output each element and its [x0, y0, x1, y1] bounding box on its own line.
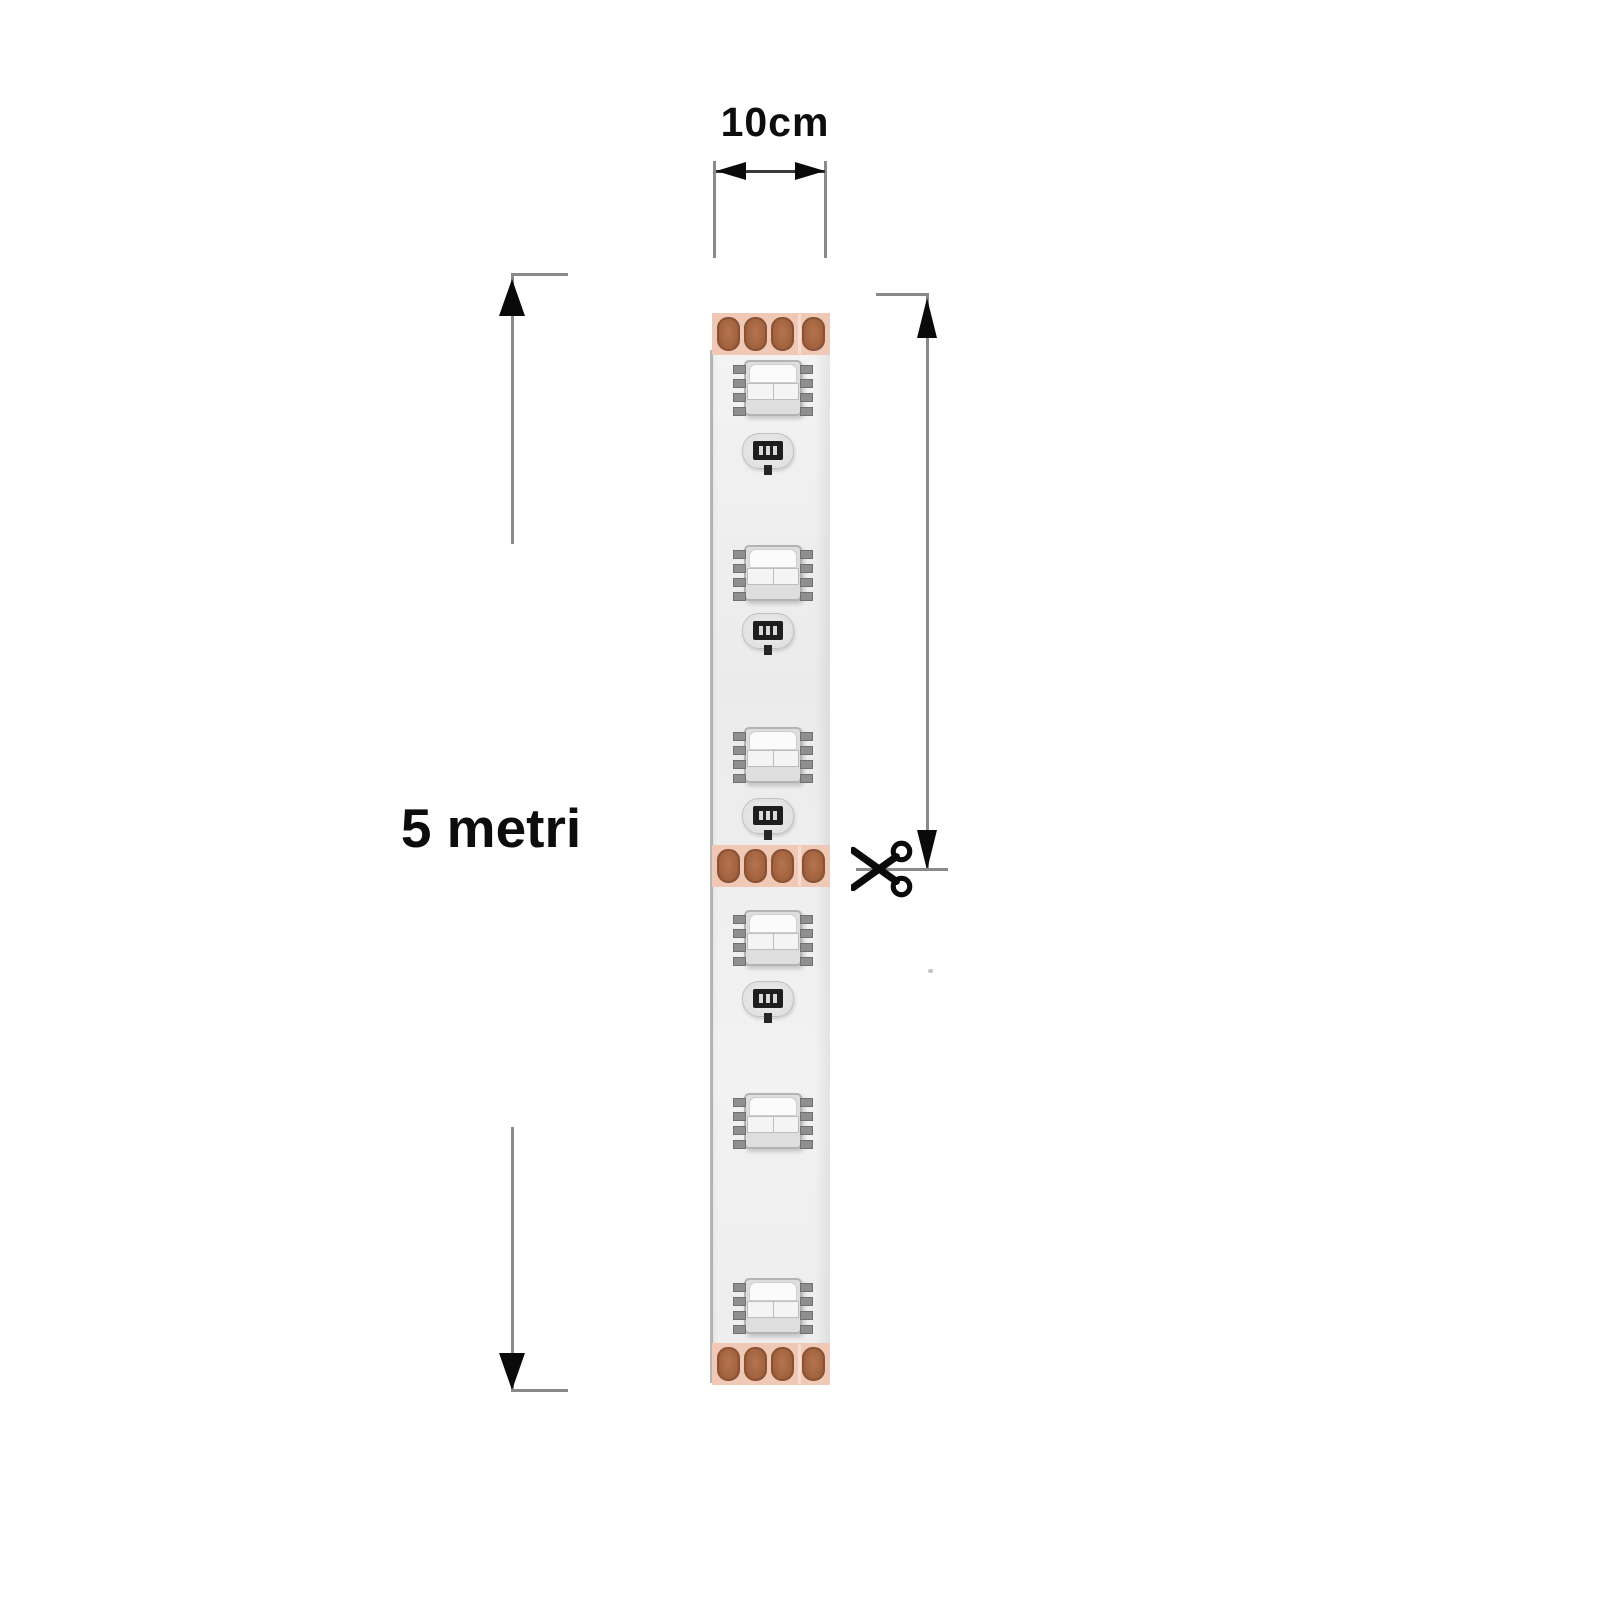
- solder-pad: [802, 317, 825, 351]
- resistor: [742, 613, 794, 649]
- arrow-down-icon: [499, 1353, 525, 1390]
- segment-tick-top: [876, 293, 929, 296]
- led-module: [744, 545, 802, 601]
- led-pin: [733, 1325, 746, 1334]
- resistor: [742, 433, 794, 469]
- solder-pad: [744, 849, 767, 883]
- led-pin: [800, 379, 813, 388]
- resistor: [742, 981, 794, 1017]
- resistor-chip: [753, 621, 783, 640]
- led-pin: [733, 929, 746, 938]
- led-pin: [733, 732, 746, 741]
- length-tick-top: [511, 273, 568, 276]
- cut-seam: [798, 846, 801, 886]
- resistor: [742, 798, 794, 834]
- led-lens-top: [749, 731, 797, 750]
- led-pin: [733, 1311, 746, 1320]
- led-pin: [800, 915, 813, 924]
- led-pin: [800, 393, 813, 402]
- led-pin: [733, 957, 746, 966]
- resistor-chip: [753, 989, 783, 1008]
- led-pin: [800, 1311, 813, 1320]
- resistor-marking: [773, 626, 777, 635]
- led-pin: [733, 760, 746, 769]
- width-dimension-label: 10cm: [695, 102, 855, 143]
- resistor-marking: [759, 626, 763, 635]
- led-lens-top: [749, 914, 797, 933]
- led-pin: [733, 1283, 746, 1292]
- scissors-icon: [851, 835, 919, 903]
- arrow-left-icon: [716, 162, 746, 180]
- led-lens-window: [747, 933, 799, 950]
- led-pin: [733, 564, 746, 573]
- led-pin: [733, 1112, 746, 1121]
- led-pin: [733, 915, 746, 924]
- led-lens-top: [749, 1282, 797, 1301]
- solder-pad: [717, 849, 740, 883]
- segment-dimension-line: [926, 293, 929, 871]
- led-pin: [800, 774, 813, 783]
- led-lens-top: [749, 364, 797, 383]
- led-lens-top: [749, 1097, 797, 1116]
- length-dimension-line-lower: [511, 1127, 514, 1391]
- led-pin: [733, 379, 746, 388]
- led-pin: [800, 1325, 813, 1334]
- led-pin: [733, 1126, 746, 1135]
- led-pin: [800, 943, 813, 952]
- solder-pad-row: [712, 845, 830, 887]
- solder-pad: [802, 849, 825, 883]
- resistor-marking: [766, 811, 770, 820]
- led-pin: [733, 592, 746, 601]
- arrow-down-icon: [917, 830, 937, 870]
- solder-pad: [771, 849, 794, 883]
- solder-pad-row: [712, 1343, 830, 1385]
- led-pin: [733, 365, 746, 374]
- led-pin: [800, 732, 813, 741]
- led-lens-window: [747, 1301, 799, 1318]
- resistor-marking: [773, 811, 777, 820]
- led-pin: [733, 1098, 746, 1107]
- led-pin: [733, 550, 746, 559]
- led-pin: [800, 1112, 813, 1121]
- arrow-up-icon: [499, 279, 525, 316]
- resistor-marking: [766, 994, 770, 1003]
- led-strip-dimension-diagram: 10cm 5 metri: [0, 0, 1600, 1600]
- led-pin: [800, 957, 813, 966]
- solder-pad: [744, 1347, 767, 1381]
- solder-pad: [717, 1347, 740, 1381]
- photo-speck: [928, 969, 933, 973]
- resistor-chip: [753, 806, 783, 825]
- led-module: [744, 1278, 802, 1334]
- led-strip: [712, 313, 830, 1383]
- solder-pad: [771, 317, 794, 351]
- resistor-marking: [759, 811, 763, 820]
- led-pin: [800, 1297, 813, 1306]
- led-module: [744, 727, 802, 783]
- led-pin: [733, 746, 746, 755]
- resistor-terminal: [764, 830, 772, 840]
- led-pin: [800, 592, 813, 601]
- length-tick-bottom: [511, 1389, 568, 1392]
- led-pin: [733, 1297, 746, 1306]
- led-pin: [733, 774, 746, 783]
- resistor-marking: [759, 446, 763, 455]
- led-pin: [800, 746, 813, 755]
- resistor-terminal: [764, 465, 772, 475]
- solder-pad: [802, 1347, 825, 1381]
- resistor-marking: [773, 446, 777, 455]
- led-pin: [800, 550, 813, 559]
- resistor-terminal: [764, 645, 772, 655]
- led-pin: [800, 578, 813, 587]
- led-pin: [733, 943, 746, 952]
- led-lens-top: [749, 549, 797, 568]
- led-pin: [800, 1098, 813, 1107]
- led-module: [744, 910, 802, 966]
- led-pin: [800, 564, 813, 573]
- led-module: [744, 1093, 802, 1149]
- led-pin: [733, 578, 746, 587]
- led-pin: [733, 407, 746, 416]
- led-pin: [800, 1140, 813, 1149]
- resistor-chip: [753, 441, 783, 460]
- resistor-terminal: [764, 1013, 772, 1023]
- resistor-marking: [766, 446, 770, 455]
- arrow-up-icon: [917, 298, 937, 338]
- led-lens-window: [747, 1116, 799, 1133]
- solder-pad: [744, 317, 767, 351]
- led-lens-window: [747, 750, 799, 767]
- led-lens-window: [747, 568, 799, 585]
- led-lens-window: [747, 383, 799, 400]
- led-pin: [800, 929, 813, 938]
- solder-pad: [771, 1347, 794, 1381]
- led-pin: [800, 1126, 813, 1135]
- cut-seam: [798, 1344, 801, 1384]
- solder-pad-row: [712, 313, 830, 355]
- resistor-marking: [766, 626, 770, 635]
- led-module: [744, 360, 802, 416]
- led-pin: [733, 1140, 746, 1149]
- led-pin: [733, 393, 746, 402]
- led-pin: [800, 760, 813, 769]
- led-pin: [800, 1283, 813, 1292]
- length-dimension-label: 5 metri: [360, 801, 622, 856]
- led-pin: [800, 365, 813, 374]
- resistor-marking: [773, 994, 777, 1003]
- resistor-marking: [759, 994, 763, 1003]
- arrow-right-icon: [795, 162, 825, 180]
- led-pin: [800, 407, 813, 416]
- solder-pad: [717, 317, 740, 351]
- cut-seam: [798, 314, 801, 354]
